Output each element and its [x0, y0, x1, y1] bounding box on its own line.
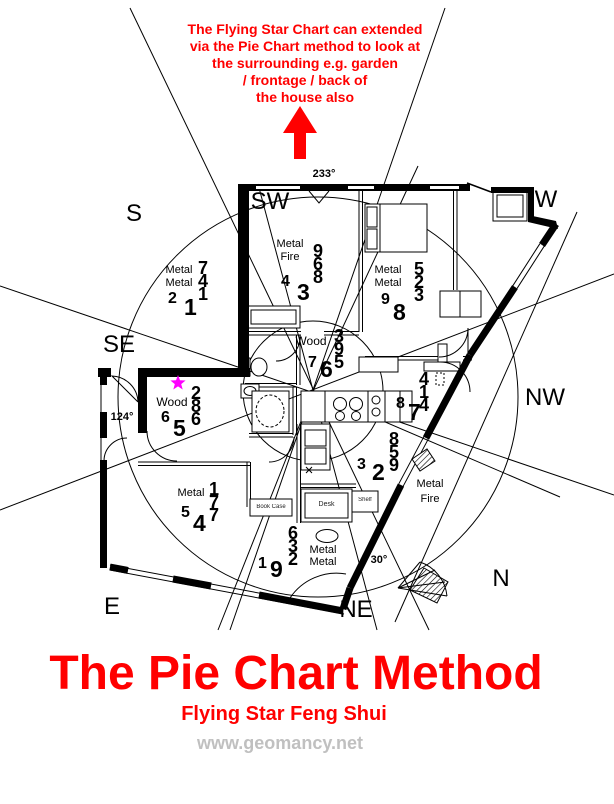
sector-number: 1 [258, 556, 267, 572]
sector-number: 6 [161, 410, 170, 426]
sector-number: 6 [320, 358, 333, 381]
star-marker-icon [170, 375, 185, 390]
bathtub [252, 391, 289, 432]
sector-number: 3 [297, 281, 310, 304]
sector-number: 4 [193, 512, 206, 535]
sector-number: 3 [357, 457, 366, 473]
sector-elements: MetalMetal [301, 544, 345, 568]
sector-number: 5 [173, 417, 186, 440]
compass-northeast: NE [326, 598, 386, 622]
sector-number: 8 [396, 396, 405, 412]
sector-number: 9 [270, 558, 283, 581]
door-arc [112, 376, 138, 402]
table-oval [316, 530, 338, 543]
stove-burner [334, 398, 347, 411]
shelf-label: Shelf [352, 497, 378, 503]
door-arc [290, 573, 346, 598]
compass-north: N [471, 567, 531, 591]
closet [424, 362, 460, 371]
sector-elements: Wood [289, 335, 333, 348]
sector-number: 5 [181, 505, 190, 521]
up-arrow-icon [283, 106, 317, 159]
closet [359, 357, 398, 372]
closet [438, 344, 447, 362]
compass-southwest: SW [240, 190, 300, 214]
annotation-line: the house also [145, 89, 465, 106]
cabinet [301, 424, 330, 473]
page-title: The Pie Chart Method [0, 650, 592, 698]
bearing-southeast: 124° [97, 412, 147, 423]
sector-star-stack: 286 [186, 387, 206, 426]
sector-elements: MetalFire [408, 477, 452, 507]
sector-elements: MetalMetal [366, 264, 410, 290]
sector-number: 7 [408, 401, 421, 424]
bearing-northeast: 30° [354, 555, 404, 566]
compass-east: E [82, 595, 142, 619]
bearing-southwest: 233° [299, 169, 349, 180]
compass-west: W [516, 188, 576, 212]
compass-northwest: NW [515, 386, 575, 410]
sector-star-stack: 859 [384, 433, 404, 472]
stove-burner [336, 412, 345, 421]
compass-south: S [104, 202, 164, 226]
sector-star-stack: 523 [409, 263, 429, 302]
sector-star-stack: 177 [204, 483, 224, 522]
open-door-leaf [467, 183, 491, 192]
annotation-line: The Flying Star Chart can extended [145, 21, 465, 38]
sector-number: 4 [281, 274, 290, 290]
stove-burner [352, 412, 361, 421]
annotation-line: the surrounding e.g. garden [145, 55, 465, 72]
sector-star-stack: 632 [283, 527, 303, 566]
sector-number: 7 [308, 355, 317, 371]
desk-label: Desk [301, 501, 352, 508]
page-subtitle: Flying Star Feng Shui [0, 704, 568, 724]
sector-number: 1 [184, 296, 197, 319]
compass-southeast: SE [89, 333, 149, 357]
door-arc [269, 437, 294, 462]
sector-number: 8 [393, 301, 406, 324]
bed [365, 204, 427, 252]
bookcase-label: Book Case [250, 504, 292, 510]
stove-burner [350, 398, 363, 411]
door-arc [104, 438, 127, 461]
sector-number: 9 [381, 292, 390, 308]
sector-elements: MetalFire [268, 238, 312, 264]
annotation-line: via the Pie Chart method to look at [145, 38, 465, 55]
sector-number: 2 [372, 461, 385, 484]
website-text: www.geomancy.net [0, 734, 560, 752]
annotation-line: / frontage / back of [145, 72, 465, 89]
wardrobe [440, 291, 481, 317]
sector-star-stack: 968 [308, 245, 328, 284]
sector-number: 2 [168, 291, 177, 307]
page: The Flying Star Chart can extended via t… [0, 0, 614, 804]
